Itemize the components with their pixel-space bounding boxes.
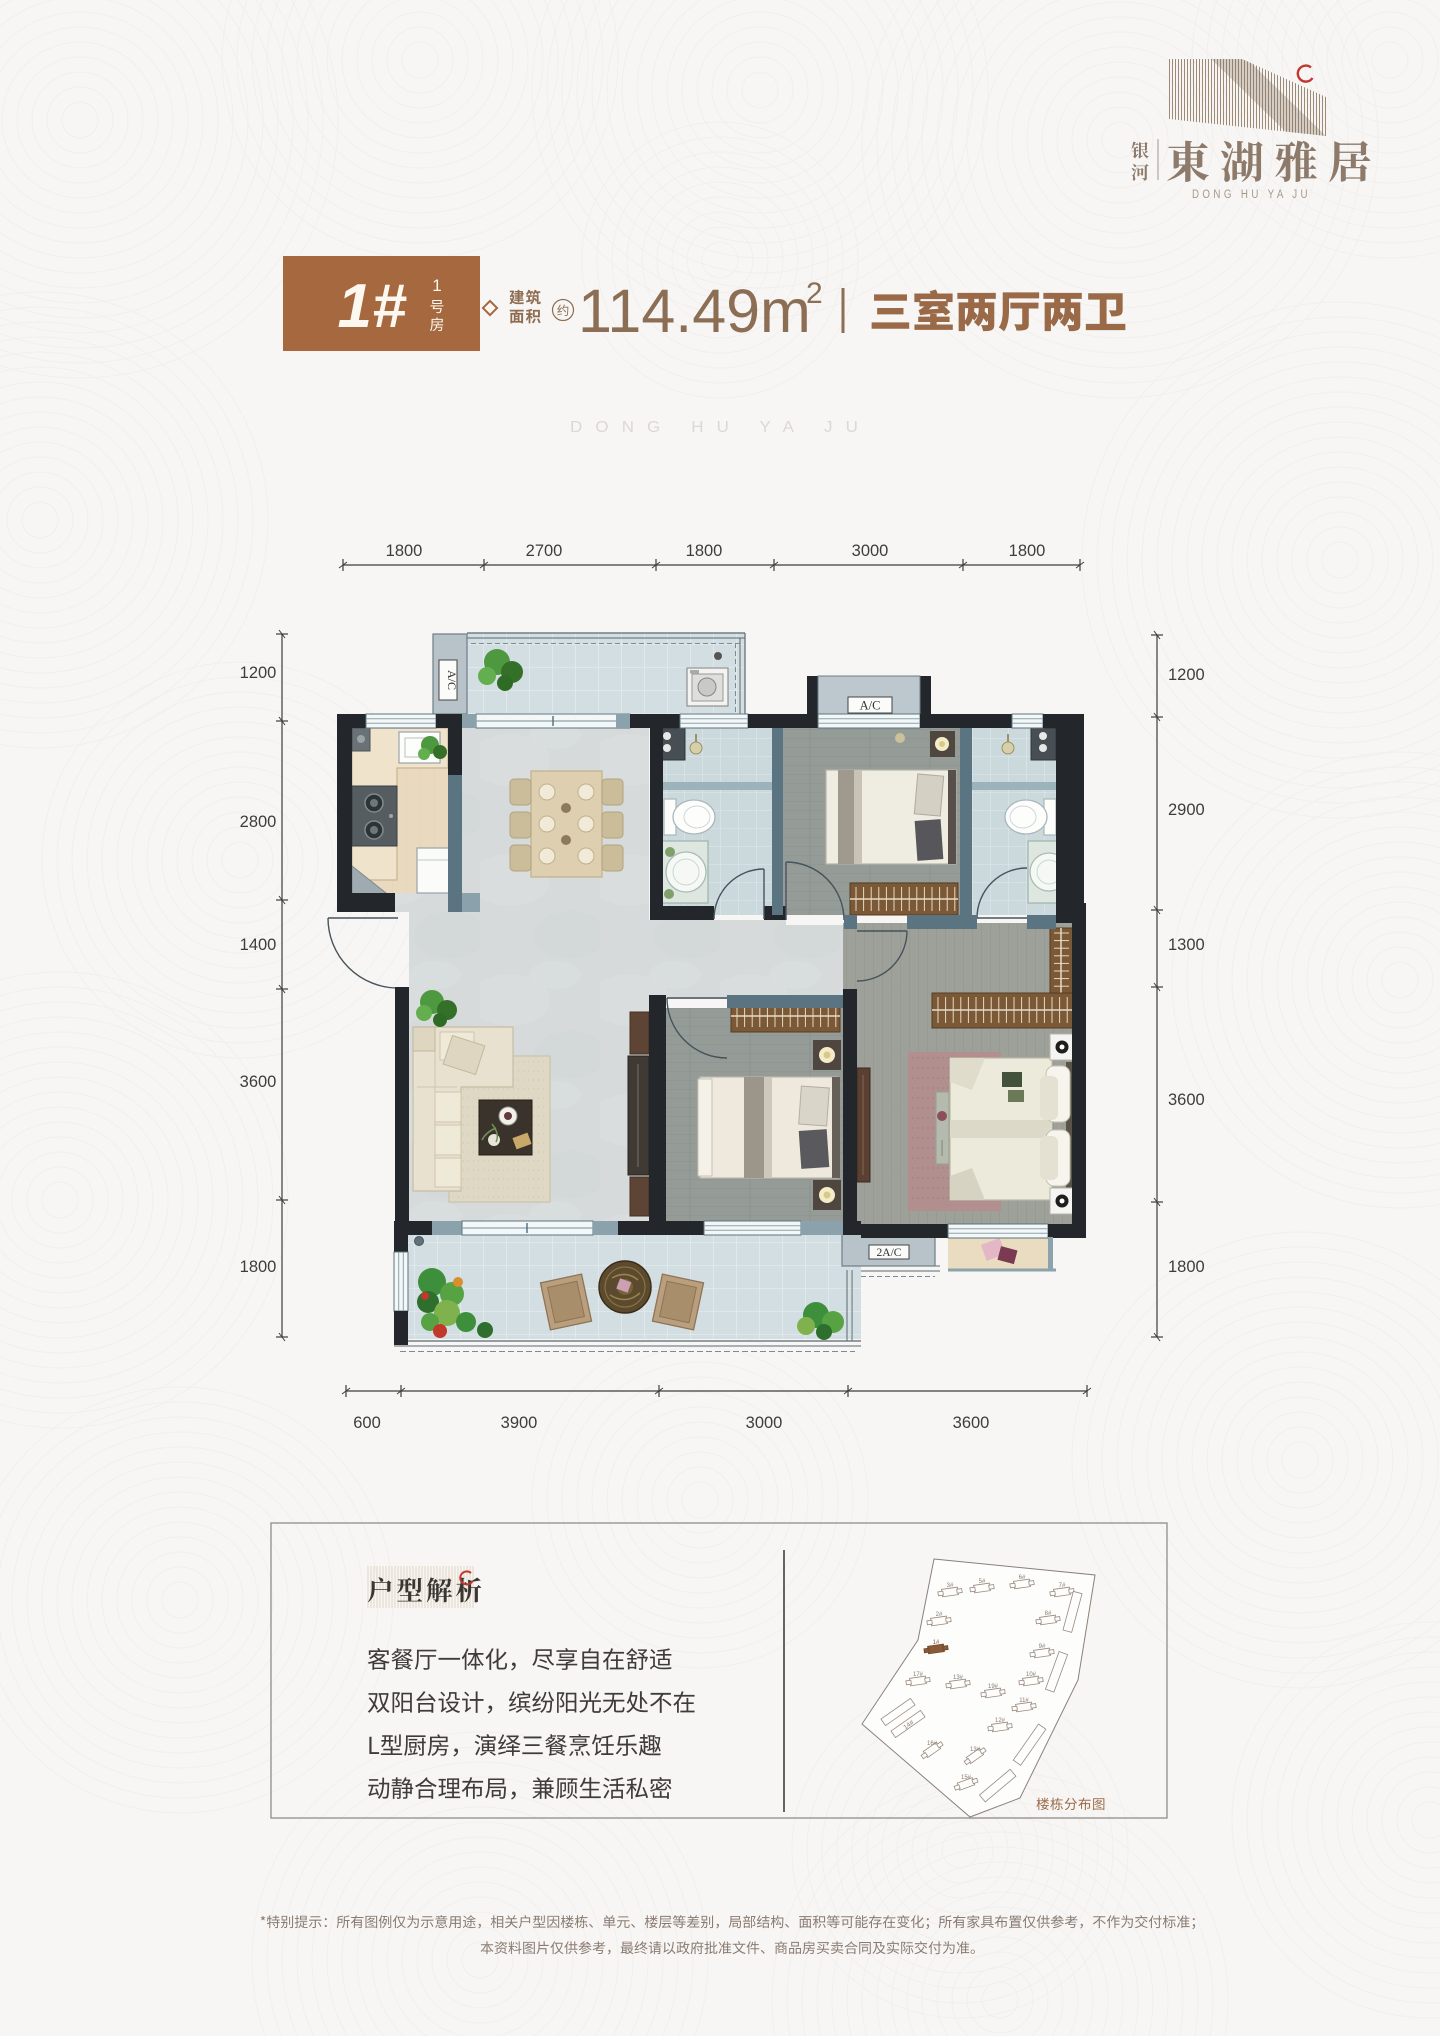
- svg-text:2700: 2700: [526, 542, 563, 560]
- svg-text:1200: 1200: [240, 664, 277, 682]
- svg-text:6#: 6#: [1019, 1575, 1026, 1581]
- svg-text:11#: 11#: [1019, 1698, 1029, 1704]
- svg-text:12#: 12#: [995, 1718, 1006, 1724]
- svg-text:9#: 9#: [1039, 1644, 1046, 1650]
- svg-text:3600: 3600: [240, 1073, 277, 1091]
- svg-text:1200: 1200: [1168, 666, 1205, 684]
- svg-text:3#: 3#: [947, 1583, 954, 1589]
- svg-text:16#: 16#: [927, 1741, 938, 1747]
- svg-text:3000: 3000: [746, 1414, 783, 1432]
- svg-text:3600: 3600: [1168, 1091, 1205, 1109]
- svg-text:5#: 5#: [979, 1579, 986, 1585]
- svg-text:DONG HU YA JU: DONG HU YA JU: [1192, 189, 1311, 201]
- svg-text:2900: 2900: [1168, 801, 1205, 819]
- svg-text:1800: 1800: [1168, 1258, 1205, 1276]
- svg-text:1#: 1#: [933, 1640, 940, 1646]
- svg-text:2800: 2800: [240, 813, 277, 831]
- svg-text:19#: 19#: [988, 1684, 999, 1690]
- svg-text:1800: 1800: [386, 542, 423, 560]
- svg-text:2#: 2#: [936, 1612, 943, 1618]
- svg-text:3900: 3900: [501, 1414, 538, 1432]
- svg-text:A/C: A/C: [445, 670, 459, 690]
- svg-text:1400: 1400: [240, 936, 277, 954]
- svg-text:A/C: A/C: [860, 699, 881, 713]
- svg-text:13#: 13#: [970, 1747, 981, 1753]
- svg-text:7#: 7#: [1059, 1583, 1066, 1589]
- svg-text:114.49m: 114.49m: [578, 277, 811, 345]
- svg-text:1300: 1300: [1168, 936, 1205, 954]
- svg-text:15#: 15#: [961, 1775, 972, 1781]
- svg-text:1: 1: [432, 276, 441, 295]
- svg-text:1800: 1800: [240, 1258, 277, 1276]
- svg-text:2A/C: 2A/C: [877, 1247, 902, 1259]
- svg-text:1800: 1800: [686, 542, 723, 560]
- svg-text:1#: 1#: [338, 272, 407, 341]
- svg-text:3000: 3000: [852, 542, 889, 560]
- svg-text:DONG HU YA JU: DONG HU YA JU: [570, 419, 871, 436]
- svg-text:13#: 13#: [953, 1675, 964, 1681]
- svg-text:2: 2: [806, 277, 823, 310]
- svg-text:1800: 1800: [1009, 542, 1046, 560]
- svg-text:8#: 8#: [1045, 1611, 1052, 1617]
- svg-text:17#: 17#: [913, 1672, 924, 1678]
- svg-text:600: 600: [353, 1414, 381, 1432]
- svg-text:10#: 10#: [1026, 1672, 1037, 1678]
- svg-text:3600: 3600: [953, 1414, 990, 1432]
